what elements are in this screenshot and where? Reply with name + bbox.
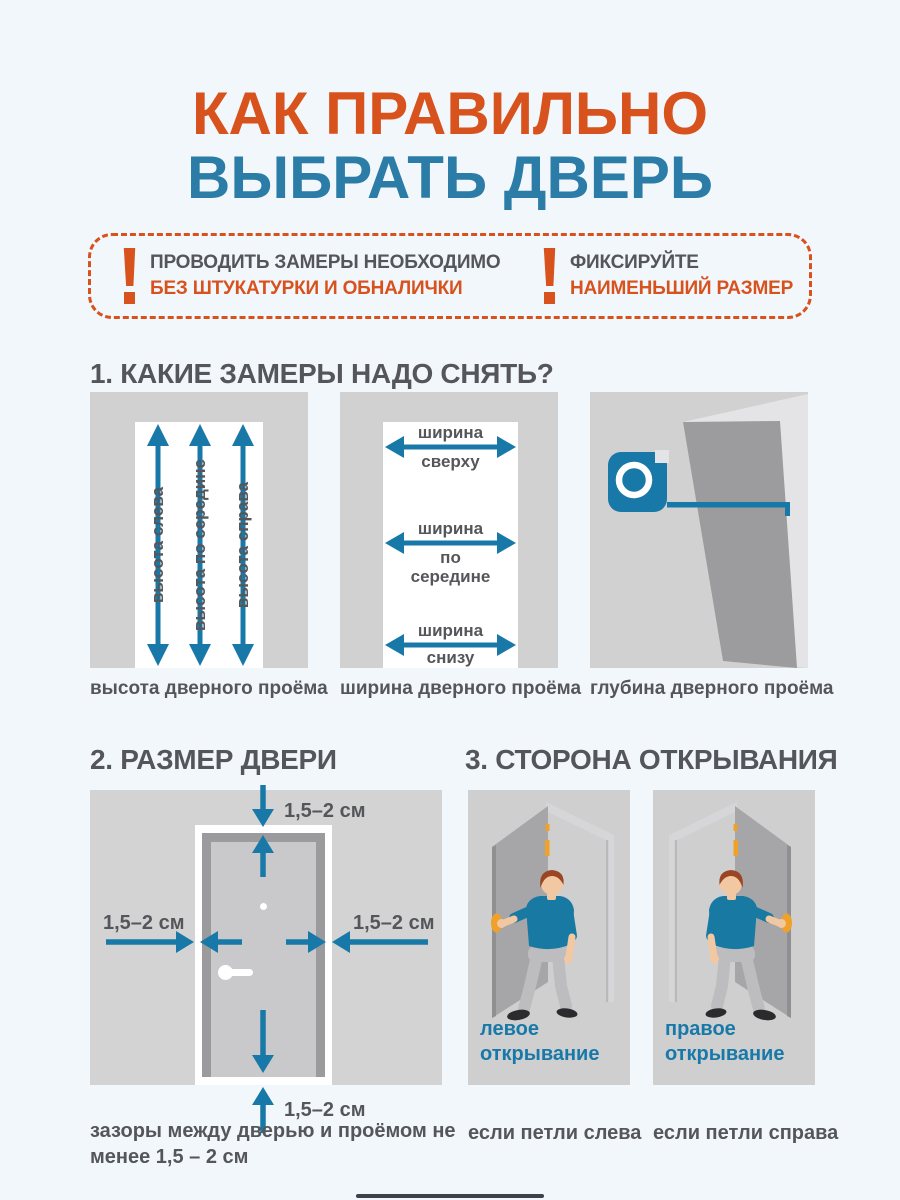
depth-measure-panel [590,392,808,668]
title-line-2: ВЫБРАТЬ ДВЕРЬ [0,146,900,210]
panel-caption: если петли справа [653,1122,815,1145]
width-measure-panel: ширина сверху ширина по середине ширина … [340,392,558,668]
direction-label-line: открывание [480,1042,599,1067]
panel-caption: высота дверного проёма [90,678,308,700]
door-opening: ширина сверху ширина по середине ширина … [383,422,518,668]
measure-label: ширина [383,621,518,640]
direction-label: правое открывание [665,1017,784,1067]
measure-label: снизу [383,648,518,667]
notice-box: ПРОВОДИТЬ ЗАМЕРЫ НЕОБХОДИМО БЕЗ ШТУКАТУР… [88,233,812,319]
tape-measure-wall-icon [590,392,808,668]
notice-text-accent: БЕЗ ШТУКАТУРКИ И ОБНАЛИЧКИ [150,276,501,302]
measure-label: по середине [409,548,492,586]
measure-label: высота по середине [190,459,210,631]
gap-label: 1,5–2 см [103,912,185,935]
notice-item-2: ФИКСИРУЙТЕ НАИМЕНЬШИЙ РАЗМЕР [543,248,793,304]
measure-label: сверху [383,452,518,471]
panel-caption: ширина дверного проёма [340,678,558,700]
measure-label: ширина [383,423,518,442]
exclamation-icon [123,248,137,304]
gap-label: 1,5–2 см [284,800,366,823]
measure-label: высота справа [233,482,253,608]
measure-label: высота слева [148,487,168,603]
measure-label: ширина [383,519,518,538]
left-opening-panel: левое открывание [468,790,630,1085]
door-opening: высота слева высота по середине высота с… [135,422,263,668]
right-opening-panel: правое открывание [653,790,815,1085]
direction-label-line: правое [665,1017,784,1042]
exclamation-icon [543,248,557,304]
notice-item-1: ПРОВОДИТЬ ЗАМЕРЫ НЕОБХОДИМО БЕЗ ШТУКАТУР… [123,248,501,304]
direction-label: левое открывание [480,1017,599,1067]
section2-caption: зазоры между дверью и проёмом не менее 1… [90,1118,466,1170]
section3-heading: 3. СТОРОНА ОТКРЫВАНИЯ [465,744,837,776]
home-indicator-bar [356,1194,544,1198]
gap-arrows-icon [90,785,442,1137]
notice-text-accent: НАИМЕНЬШИЙ РАЗМЕР [570,276,793,302]
notice-text: ФИКСИРУЙТЕ [570,250,793,276]
infographic-poster: КАК ПРАВИЛЬНО ВЫБРАТЬ ДВЕРЬ ПРОВОДИТЬ ЗА… [0,0,900,1200]
title-line-1: КАК ПРАВИЛЬНО [0,82,900,146]
section2-heading: 2. РАЗМЕР ДВЕРИ [90,744,337,776]
gap-label: 1,5–2 см [353,912,435,935]
height-measure-panel: высота слева высота по середине высота с… [90,392,308,668]
section1-heading: 1. КАКИЕ ЗАМЕРЫ НАДО СНЯТЬ? [90,358,554,390]
open-door-left-illustration [468,790,630,1022]
open-door-right-illustration [653,790,815,1022]
notice-text: ПРОВОДИТЬ ЗАМЕРЫ НЕОБХОДИМО [150,250,501,276]
direction-label-line: левое [480,1017,599,1042]
page-title: КАК ПРАВИЛЬНО ВЫБРАТЬ ДВЕРЬ [0,82,900,210]
direction-label-line: открывание [665,1042,784,1067]
panel-caption: глубина дверного проёма [590,678,808,700]
panel-caption: если петли слева [468,1122,630,1145]
